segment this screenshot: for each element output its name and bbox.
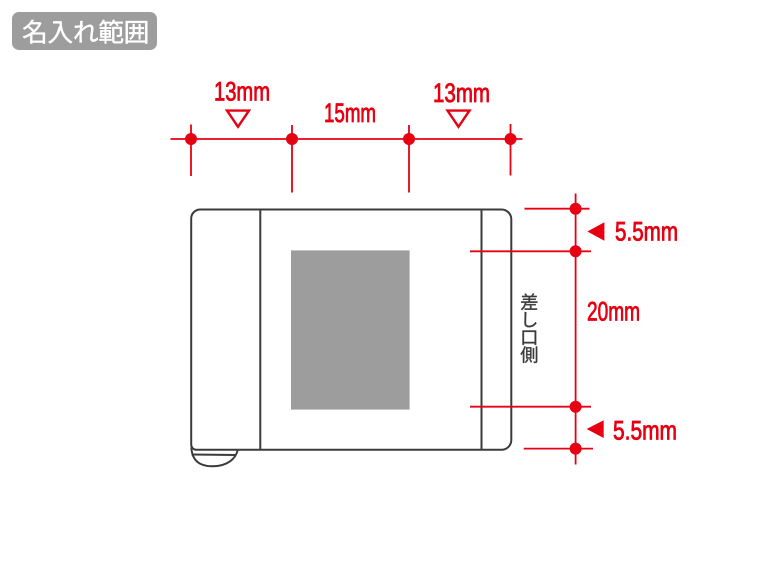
svg-text:13mm: 13mm <box>214 77 270 107</box>
svg-text:15mm: 15mm <box>324 98 376 128</box>
svg-text:13mm: 13mm <box>433 78 490 108</box>
svg-text:20mm: 20mm <box>587 297 640 327</box>
svg-text:5.5mm: 5.5mm <box>615 217 678 247</box>
svg-text:5.5mm: 5.5mm <box>613 416 677 446</box>
